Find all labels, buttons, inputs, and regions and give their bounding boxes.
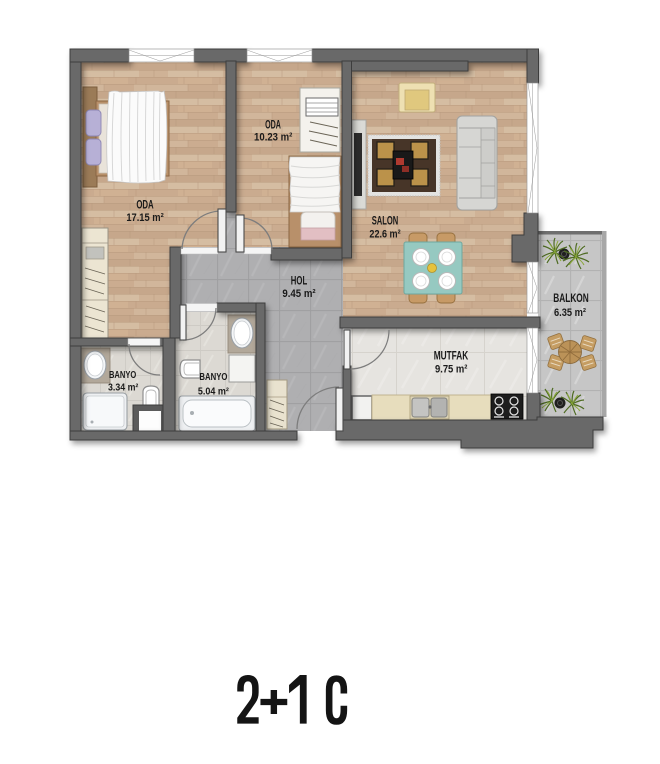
svg-text:BANYO: BANYO xyxy=(109,369,136,380)
svg-text:17.15 m²: 17.15 m² xyxy=(126,212,164,224)
svg-text:10.23 m²: 10.23 m² xyxy=(254,132,293,144)
svg-text:BALKON: BALKON xyxy=(553,293,588,306)
svg-text:9.45 m²: 9.45 m² xyxy=(282,288,316,300)
svg-text:SALON: SALON xyxy=(372,215,399,228)
svg-text:MUTFAK: MUTFAK xyxy=(434,350,469,363)
svg-text:BANYO: BANYO xyxy=(199,371,227,382)
svg-text:ODA: ODA xyxy=(136,199,153,212)
svg-text:22.6 m²: 22.6 m² xyxy=(369,229,401,241)
svg-text:3.34 m²: 3.34 m² xyxy=(108,381,138,393)
svg-text:9.75 m²: 9.75 m² xyxy=(435,364,468,376)
svg-text:5.04 m²: 5.04 m² xyxy=(198,386,229,398)
svg-text:6.35 m²: 6.35 m² xyxy=(554,307,587,319)
svg-text:HOL: HOL xyxy=(291,275,307,288)
svg-text:ODA: ODA xyxy=(265,119,281,132)
